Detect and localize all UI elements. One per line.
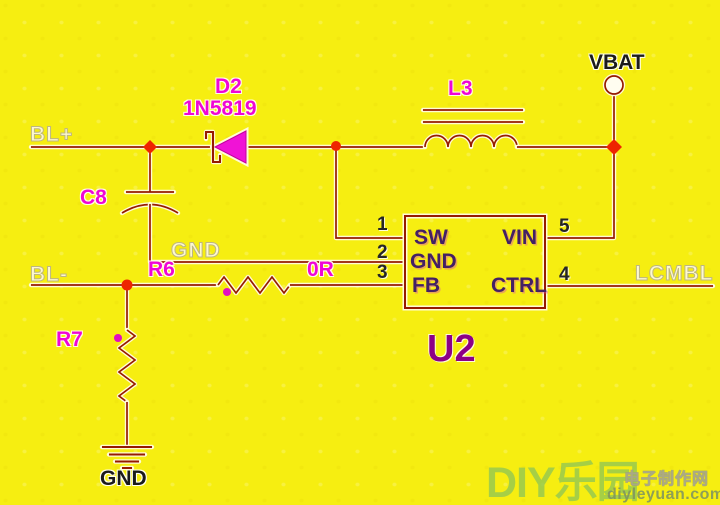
r7-ref-label: R7 [56,329,83,350]
resistor-r7-symbol [119,285,135,447]
net-label-bl-minus: BL- [30,264,68,285]
ic-pin-name-ctrl: CTRL [491,275,547,296]
ic-pin-number-4: 4 [559,265,570,284]
ic-pin-number-1: 1 [377,215,388,234]
net-label-bl-plus: BL+ [30,124,73,145]
net-label-gnd: GND [171,240,221,261]
vbat-terminal [605,76,623,94]
diode-symbol [206,131,246,163]
inductor-symbol [423,110,523,147]
r6-value-label: 0R [307,259,334,280]
inductor-ref-label: L3 [448,78,473,99]
r6-ref-label: R6 [148,259,175,280]
ic-pin-name-sw: SW [414,227,448,248]
ground-symbol [102,447,152,468]
watermark-url: diyleyuan.com [607,487,720,503]
gnd-label: GND [100,468,147,489]
capacitor-ref-label: C8 [80,187,107,208]
vbat-label: VBAT [589,52,645,73]
wire-vbat-to-vin [545,94,614,238]
wire-junction-to-sw-pin [336,147,405,238]
ic-pin-number-3: 3 [377,263,388,282]
ic-pin-name-gnd: GND [410,251,457,272]
diode-value-label: 1N5819 [183,98,257,119]
diode-ref-label: D2 [215,76,242,97]
ic-ref-label: U2 [427,330,476,368]
ic-pin-name-vin: VIN [502,227,537,248]
ic-pin-number-2: 2 [377,243,388,262]
ic-pin-name-fb: FB [412,275,440,296]
net-label-lcmbl: LCMBL [635,263,713,284]
ic-pin-number-5: 5 [559,217,570,236]
schematic-page: BL+ BL- GND LCMBL D2 1N5819 L3 C8 R6 0R … [0,0,720,505]
schematic-canvas [0,0,720,505]
